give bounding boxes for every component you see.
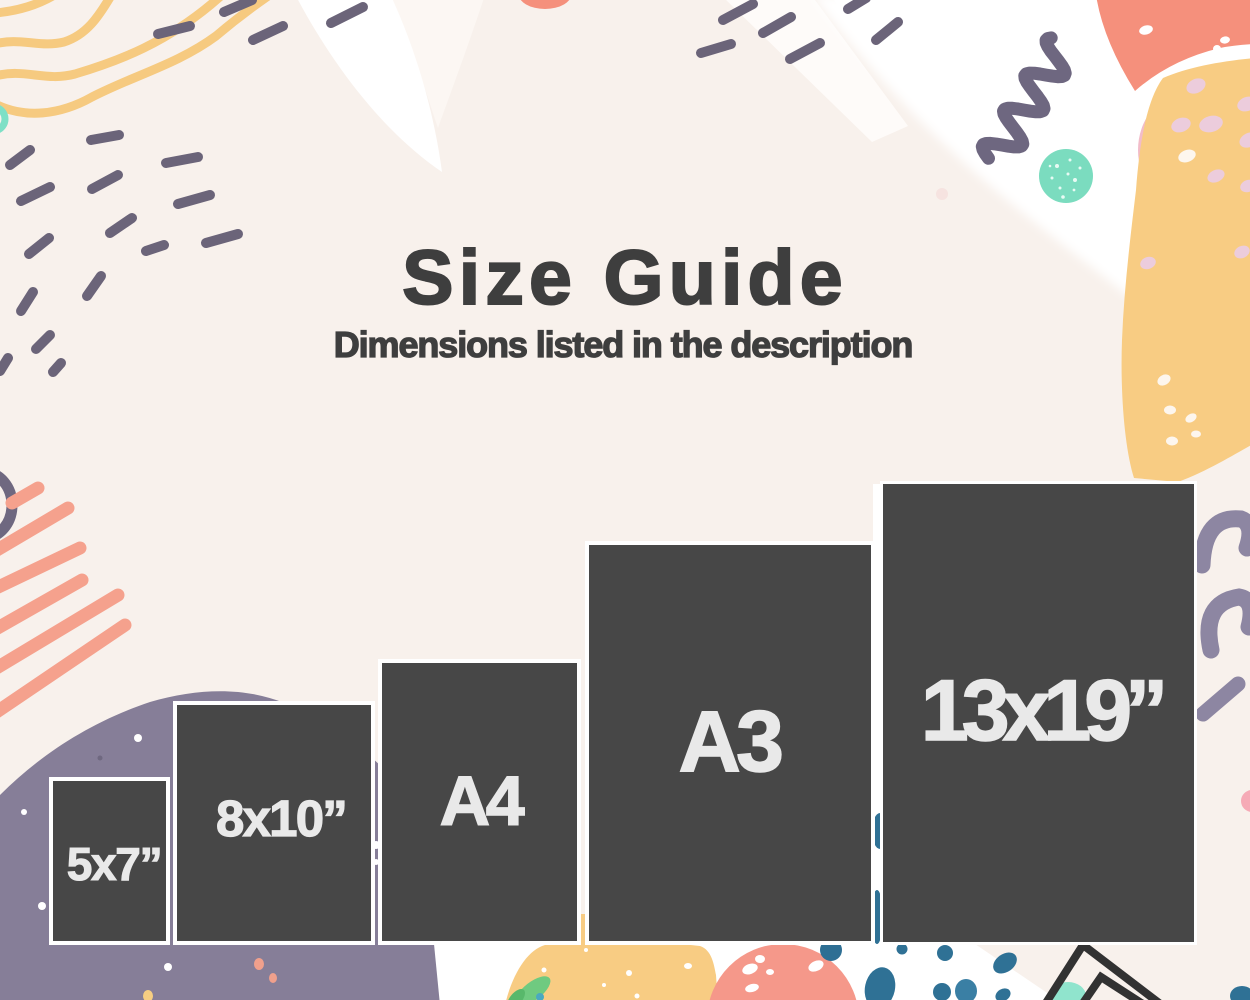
svg-text:A4: A4 — [440, 762, 525, 840]
svg-text:Dimensions listed in the descr: Dimensions listed in the description — [334, 324, 913, 365]
svg-text:A3: A3 — [679, 694, 782, 790]
svg-text:5x7”: 5x7” — [67, 838, 162, 890]
svg-text:8x10”: 8x10” — [216, 790, 346, 847]
svg-text:13x19”: 13x19” — [921, 663, 1162, 759]
svg-text:Size Guide: Size Guide — [402, 235, 848, 321]
